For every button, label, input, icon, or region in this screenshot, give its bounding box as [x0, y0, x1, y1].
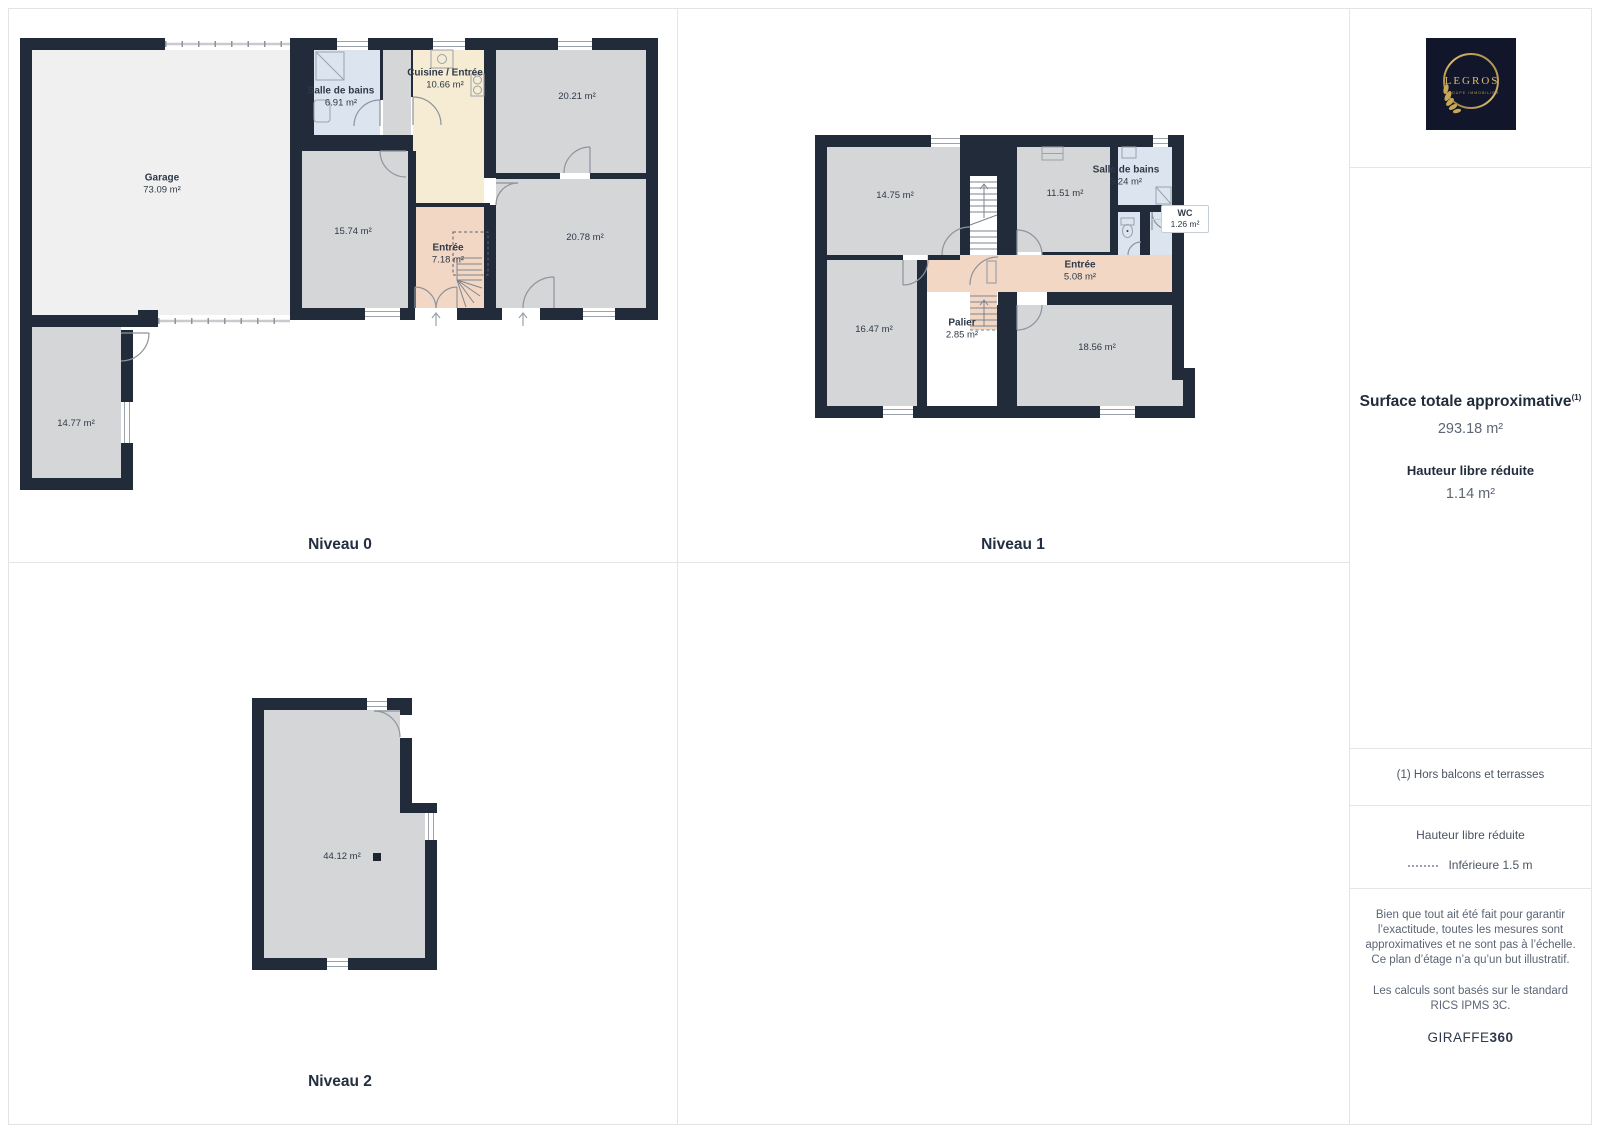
room-label-annexe: 14.77 m² — [57, 418, 95, 430]
floor-caption-niveau-2: Niveau 2 — [16, 1073, 664, 1091]
room-label-salle-de-bains: Salle de bains 6.91 m² — [308, 84, 375, 109]
legend-item-label: Inférieure 1.5 m — [1448, 858, 1532, 872]
legend-row: Inférieure 1.5 m — [1349, 858, 1592, 872]
room-label-salle-de-bains: Salle de bains 5.24 m² — [1093, 163, 1160, 188]
floor-plan-niveau-2: 44.12 m² — [250, 690, 445, 980]
grid-line-vertical — [677, 8, 678, 1125]
surface-total-value: 293.18 m² — [1349, 421, 1592, 437]
disclaimer-block: Bien que tout ait été fait pour garantir… — [1365, 908, 1576, 1045]
room-label-14-75: 14.75 m² — [876, 190, 914, 202]
room-label-20-21: 20.21 m² — [558, 91, 596, 103]
room-label-11-51: 11.51 m² — [1047, 188, 1084, 200]
surface-total-title: Surface totale approximative(1) — [1349, 393, 1592, 411]
surface-summary: Surface totale approximative(1) 293.18 m… — [1349, 393, 1592, 502]
legros-logo-svg: LEGROS GROUPE IMMOBILIER — [1426, 38, 1516, 130]
room-vestibule — [383, 50, 411, 135]
disclaimer-text-1: Bien que tout ait été fait pour garantir… — [1365, 908, 1576, 968]
floor-caption-niveau-1: Niveau 1 — [677, 536, 1349, 554]
logo-brand-text: LEGROS — [1445, 75, 1500, 87]
room-18-56 — [1017, 305, 1172, 406]
legend-title: Hauteur libre réduite — [1349, 828, 1592, 842]
chimney — [373, 853, 381, 861]
room-palier — [927, 292, 970, 406]
legend-reduced-height: Hauteur libre réduite Inférieure 1.5 m — [1349, 828, 1592, 872]
floorplan-page: Garage 73.09 m² Salle de bains 6.91 m² C… — [0, 0, 1600, 1131]
sidebar-section-divider — [1349, 888, 1592, 889]
room-entree — [927, 255, 1172, 292]
floor-plan-niveau-0: Garage 73.09 m² Salle de bains 6.91 m² C… — [16, 34, 664, 494]
logo-subtitle-text: GROUPE IMMOBILIER — [1445, 91, 1500, 95]
reduced-height-label: Hauteur libre réduite — [1349, 463, 1592, 478]
sidebar-section-divider — [1349, 167, 1592, 168]
room-label-44-12: 44.12 m² — [323, 851, 361, 863]
sidebar-section-divider — [1349, 748, 1592, 749]
room-label-entree: Entrée 5.08 m² — [1064, 258, 1096, 283]
room-label-18-56: 18.56 m² — [1078, 342, 1116, 354]
wc-callout-leader — [1151, 219, 1161, 220]
floor-caption-niveau-0: Niveau 0 — [16, 536, 664, 554]
room-annexe — [32, 327, 121, 478]
legros-logo: LEGROS GROUPE IMMOBILIER — [1426, 38, 1516, 130]
floor-plan-niveau-1: 14.75 m² 11.51 m² Salle de bains 5.24 m²… — [810, 130, 1202, 422]
disclaimer-text-2: Les calculs sont basés sur le standard R… — [1365, 984, 1576, 1014]
room-label-garage: Garage 73.09 m² — [143, 171, 181, 196]
floor-plan-niveau-2-svg — [250, 690, 445, 980]
wc-callout: WC 1.26 m² — [1161, 205, 1209, 233]
room-label-cuisine: Cuisine / Entrée 10.66 m² — [407, 66, 483, 91]
room-label-entree: Entrée 7.18 m² — [432, 241, 464, 266]
footnote-text: (1) Hors balcons et terrasses — [1349, 769, 1592, 781]
room-label-20-78: 20.78 m² — [566, 232, 604, 244]
sidebar-section-divider — [1349, 805, 1592, 806]
reduced-height-value: 1.14 m² — [1349, 486, 1592, 502]
sidebar-divider — [1349, 8, 1350, 1125]
room-label-16-47: 16.47 m² — [855, 324, 893, 336]
dotted-line-icon — [1408, 865, 1438, 867]
footnote-marker: (1) — [1572, 393, 1582, 402]
room-label-15-74: 15.74 m² — [334, 226, 372, 238]
giraffe360-brand: GIRAFFE360 — [1365, 1030, 1576, 1045]
room-label-palier: Palier 2.85 m² — [946, 316, 978, 341]
grid-line-horizontal — [8, 562, 1349, 563]
